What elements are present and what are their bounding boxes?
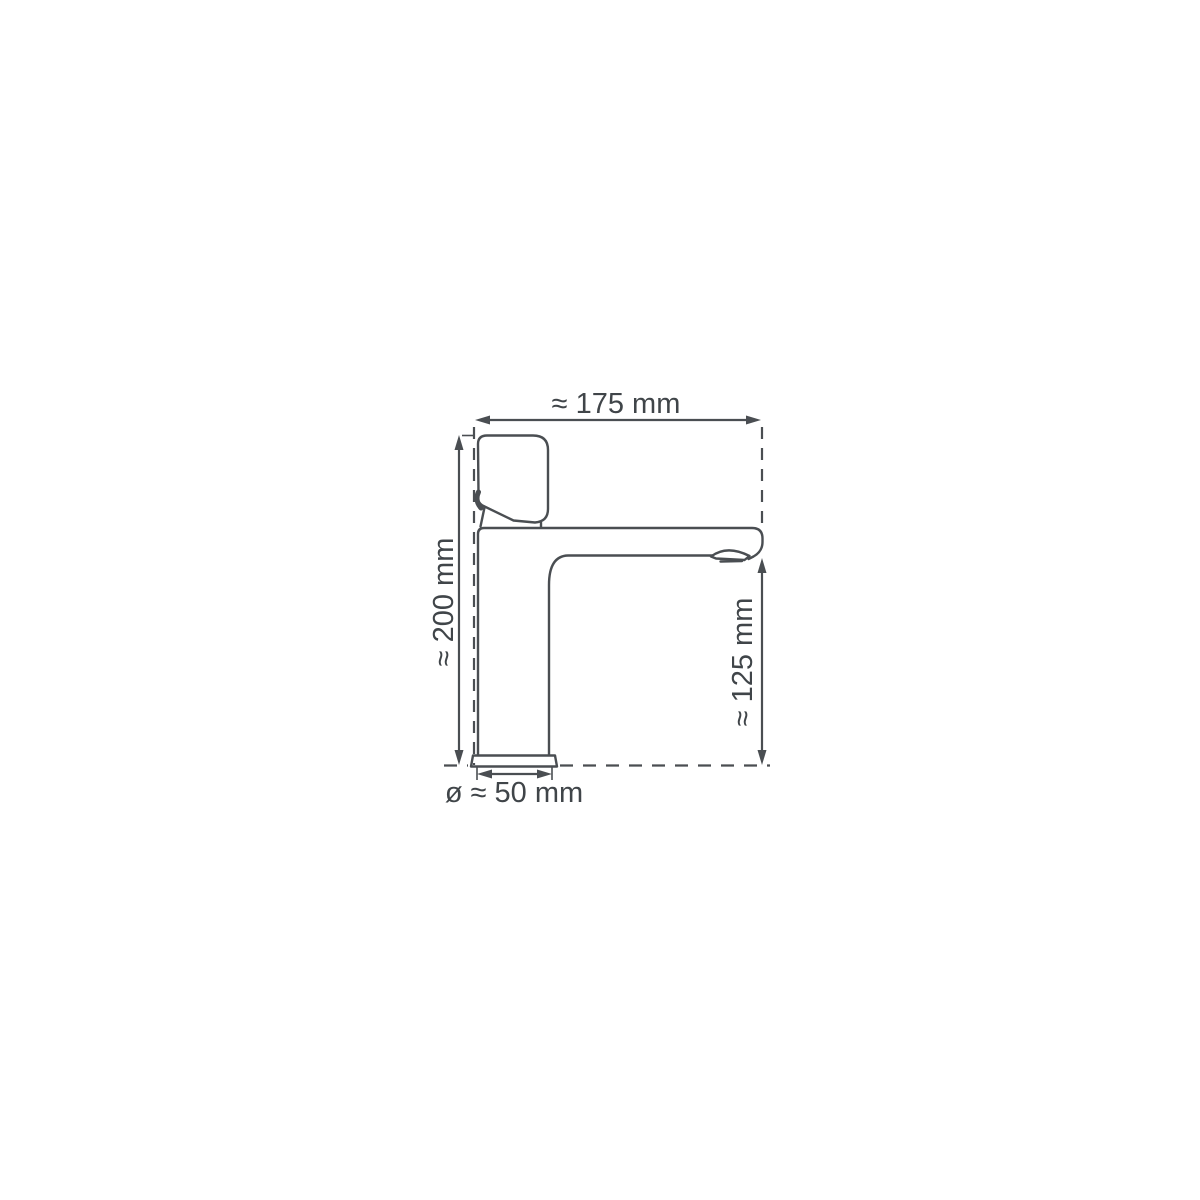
arrowhead-spout-top (758, 558, 767, 573)
tap-base-plate (471, 756, 557, 767)
tap-handle (478, 436, 548, 523)
tap-aerator (711, 550, 750, 560)
label-spout-height: ≈ 125 mm (727, 598, 759, 727)
label-base-diameter: ø ≈ 50 mm (445, 777, 583, 809)
arrowhead-height-bottom (455, 750, 464, 765)
faucet-dimension-diagram: ≈ 175 mm ≈ 200 mm ≈ 125 mm ø ≈ 50 mm (0, 0, 1200, 1200)
label-total-height: ≈ 200 mm (428, 538, 460, 667)
diagram-svg: ≈ 175 mm ≈ 200 mm ≈ 125 mm ø ≈ 50 mm (0, 0, 1200, 1200)
tap-aerator-screen-line (721, 561, 743, 562)
arrowhead-height-top (455, 435, 464, 450)
arrowhead-spout-bottom (758, 750, 767, 765)
arrowhead-width-right (746, 416, 761, 425)
label-total-width: ≈ 175 mm (552, 388, 681, 420)
faucet-outline-group (471, 436, 763, 767)
tap-spout-underside (549, 556, 714, 755)
arrowhead-width-left (475, 416, 490, 425)
